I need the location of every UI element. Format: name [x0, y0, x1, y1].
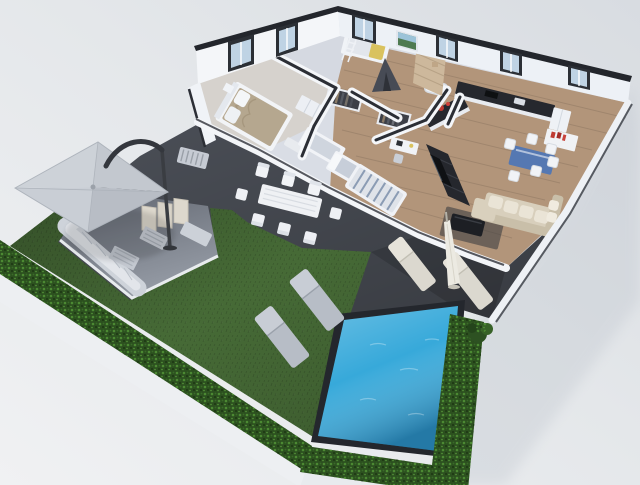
red-kettle: [446, 102, 450, 106]
floorplan-render: [0, 0, 640, 485]
floorplan-3d-scene: [0, 0, 640, 485]
